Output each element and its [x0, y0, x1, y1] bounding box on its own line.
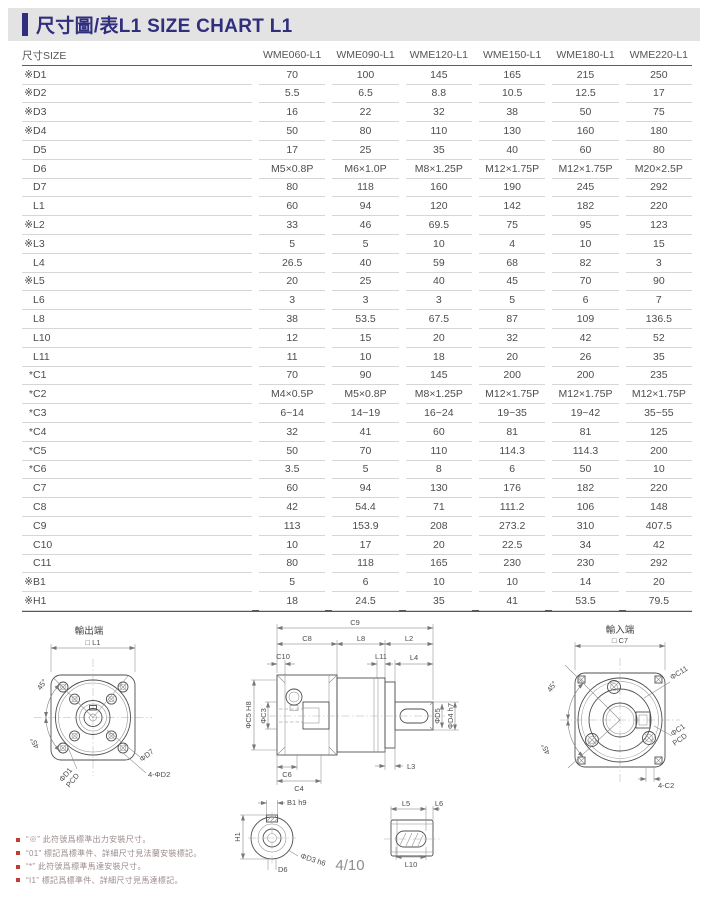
footnote-text: “※” 此符號爲標準出力安裝尺寸。 — [26, 834, 151, 845]
table-cell: 81 — [479, 423, 545, 442]
table-cell: 53.5 — [552, 592, 618, 611]
dim-label-l11: L11 — [375, 652, 387, 661]
table-cell: 94 — [332, 197, 398, 216]
table-cell: 3.5 — [259, 461, 325, 480]
table-row: C76094130176182220 — [22, 479, 692, 498]
table-cell: M8×1.25P — [406, 385, 472, 404]
row-label: D7 — [22, 179, 252, 198]
table-cell: 111.2 — [479, 498, 545, 517]
row-label: *C5 — [22, 442, 252, 461]
table-cell: 52 — [626, 329, 692, 348]
table-cell: 130 — [406, 479, 472, 498]
table-cell: 5.5 — [259, 85, 325, 104]
table-cell: 20 — [259, 273, 325, 292]
footnote-text: “I1” 標記爲標準件、詳細尺寸見馬達標記。 — [26, 875, 183, 886]
table-cell: 35~55 — [626, 404, 692, 423]
table-cell: 20 — [626, 573, 692, 592]
table-cell: 15 — [626, 235, 692, 254]
footnote: “01” 標記爲標準件、詳細尺寸見法蘭安裝標記。 — [16, 847, 202, 861]
table-cell: 5 — [332, 461, 398, 480]
table-cell: 95 — [552, 216, 618, 235]
angle-45-bottom-label: 45° — [28, 736, 41, 750]
row-label: *C4 — [22, 423, 252, 442]
table-cell: 11 — [259, 348, 325, 367]
dim-label-l4: L4 — [410, 653, 418, 662]
table-row: C9113153.9208273.2310407.5 — [22, 517, 692, 536]
footnote: “I1” 標記爲標準件、詳細尺寸見馬達標記。 — [16, 874, 202, 888]
row-label: D5 — [22, 141, 252, 160]
table-cell: 292 — [626, 179, 692, 198]
table-cell: 60 — [259, 197, 325, 216]
table-cell: 40 — [332, 254, 398, 273]
table-cell: 17 — [332, 536, 398, 555]
table-cell: 22.5 — [479, 536, 545, 555]
table-cell: 67.5 — [406, 310, 472, 329]
table-cell: 18 — [406, 348, 472, 367]
table-cell: 32 — [406, 103, 472, 122]
table-cell: 34 — [552, 536, 618, 555]
table-row: D5172535406080 — [22, 141, 692, 160]
table-row: *C2M4×0.5PM5×0.8PM8×1.25PM12×1.75PM12×1.… — [22, 385, 692, 404]
table-cell: 148 — [626, 498, 692, 517]
table-cell: 6~14 — [259, 404, 325, 423]
table-cell: M12×1.75P — [552, 385, 618, 404]
table-cell: 273.2 — [479, 517, 545, 536]
table-cell: 68 — [479, 254, 545, 273]
table-cell: 20 — [406, 536, 472, 555]
table-row: ※D25.56.58.810.512.517 — [22, 85, 692, 104]
table-cell: 20 — [406, 329, 472, 348]
table-row: C1010172022.53442 — [22, 536, 692, 555]
row-label: *C2 — [22, 385, 252, 404]
table-cell: 208 — [406, 517, 472, 536]
table-cell: 6 — [479, 461, 545, 480]
table-cell: 54.4 — [332, 498, 398, 517]
col-header: WME220-L1 — [626, 46, 692, 65]
table-cell: M12×1.75P — [552, 160, 618, 179]
angle-45-top-label: 45° — [35, 677, 49, 691]
table-row: ※B15610101420 — [22, 573, 692, 592]
row-label: L6 — [22, 291, 252, 310]
table-cell: M8×1.25P — [406, 160, 472, 179]
table-cell: 7 — [626, 291, 692, 310]
footnote: “*” 此符號爲標準馬達安裝尺寸。 — [16, 860, 202, 874]
table-row: ※L5202540457090 — [22, 273, 692, 292]
table-cell: 10 — [626, 461, 692, 480]
table-cell: 38 — [259, 310, 325, 329]
table-cell: 4 — [479, 235, 545, 254]
page-number: 4/10 — [305, 857, 395, 874]
col-header: WME060-L1 — [259, 46, 325, 65]
table-cell: 165 — [479, 66, 545, 85]
table-cell: 60 — [259, 479, 325, 498]
row-label: L11 — [22, 348, 252, 367]
size-table-header: 尺寸SIZEWME060-L1WME090-L1WME120-L1WME150-… — [22, 46, 692, 66]
row-label: *C3 — [22, 404, 252, 423]
row-label: ※B1 — [22, 573, 252, 592]
table-cell: 145 — [406, 367, 472, 386]
table-cell: 182 — [552, 479, 618, 498]
table-cell: 10 — [259, 536, 325, 555]
table-cell: 292 — [626, 555, 692, 574]
table-cell: 35 — [406, 592, 472, 611]
table-cell: 6 — [332, 573, 398, 592]
row-label: ※D2 — [22, 85, 252, 104]
datasheet-page: 尺寸圖/表L1 SIZE CHART L1 尺寸SIZEWME060-L1WME… — [0, 0, 715, 901]
table-cell: 32 — [479, 329, 545, 348]
table-row: L83853.567.587109136.5 — [22, 310, 692, 329]
table-cell: 160 — [552, 122, 618, 141]
dim-label-c5: ΦC5 H8 — [245, 701, 253, 728]
table-cell: 82 — [552, 254, 618, 273]
table-cell: 142 — [479, 197, 545, 216]
table-cell: 136.5 — [626, 310, 692, 329]
table-cell: 50 — [259, 122, 325, 141]
table-cell: 19~35 — [479, 404, 545, 423]
dim-label-c10: C10 — [276, 652, 290, 661]
table-cell: 200 — [552, 367, 618, 386]
table-cell: M5×0.8P — [259, 160, 325, 179]
table-cell: 16~24 — [406, 404, 472, 423]
table-cell: 26 — [552, 348, 618, 367]
table-cell: 17 — [626, 85, 692, 104]
row-label: ※L3 — [22, 235, 252, 254]
table-cell: M6×1.0P — [332, 160, 398, 179]
table-cell: 42 — [552, 329, 618, 348]
table-cell: 24.5 — [332, 592, 398, 611]
table-row: L426.5405968823 — [22, 254, 692, 273]
table-row: L6333567 — [22, 291, 692, 310]
angle-45-top-label: 45° — [545, 679, 559, 693]
table-cell: 79.5 — [626, 592, 692, 611]
table-row: *C17090145200200235 — [22, 367, 692, 386]
table-cell: 50 — [259, 442, 325, 461]
table-cell: 33 — [259, 216, 325, 235]
table-cell: 160 — [406, 179, 472, 198]
table-cell: 6.5 — [332, 85, 398, 104]
table-cell: 245 — [552, 179, 618, 198]
table-cell: 14~19 — [332, 404, 398, 423]
table-cell: 3 — [406, 291, 472, 310]
table-row: *C36~1414~1916~2419~3519~4235~55 — [22, 404, 692, 423]
table-cell: 80 — [259, 555, 325, 574]
table-row: L11111018202635 — [22, 348, 692, 367]
table-cell: 22 — [332, 103, 398, 122]
table-cell: 3 — [259, 291, 325, 310]
table-cell: 12.5 — [552, 85, 618, 104]
table-cell: 90 — [626, 273, 692, 292]
dim-label-l3: L3 — [407, 762, 415, 771]
row-label: ※D4 — [22, 122, 252, 141]
table-cell: 114.3 — [479, 442, 545, 461]
table-cell: 25 — [332, 273, 398, 292]
footnote: “※” 此符號爲標準出力安裝尺寸。 — [16, 833, 202, 847]
table-cell: 6 — [552, 291, 618, 310]
footnote-text: “*” 此符號爲標準馬達安裝尺寸。 — [26, 861, 146, 872]
table-cell: 120 — [406, 197, 472, 216]
table-cell: M5×0.8P — [332, 385, 398, 404]
table-cell: 130 — [479, 122, 545, 141]
table-cell: 14 — [552, 573, 618, 592]
page-title: 尺寸圖/表L1 SIZE CHART L1 — [36, 11, 292, 38]
table-cell: 35 — [626, 348, 692, 367]
dim-label-b1: B1 h9 — [287, 798, 307, 807]
table-row: D780118160190245292 — [22, 179, 692, 198]
table-row: C84254.471111.2106148 — [22, 498, 692, 517]
table-cell: 17 — [259, 141, 325, 160]
table-cell: 12 — [259, 329, 325, 348]
table-cell: 5 — [479, 291, 545, 310]
dim-label-l5: L5 — [402, 799, 410, 808]
dim-label-c6: C6 — [282, 770, 292, 779]
table-cell: 114.3 — [552, 442, 618, 461]
input-end-label: 輸入端 — [606, 624, 635, 636]
dim-label-c3: ΦC3 — [259, 708, 268, 724]
table-row: C1180118165230230292 — [22, 555, 692, 574]
table-cell: 35 — [406, 141, 472, 160]
row-label: *C1 — [22, 367, 252, 386]
table-cell: 180 — [626, 122, 692, 141]
table-cell: M20×2.5P — [626, 160, 692, 179]
table-cell: 41 — [479, 592, 545, 611]
table-cell: 220 — [626, 197, 692, 216]
bullet-icon — [16, 838, 20, 842]
table-cell: 182 — [552, 197, 618, 216]
col-header: WME090-L1 — [332, 46, 398, 65]
table-cell: 407.5 — [626, 517, 692, 536]
table-cell: 10 — [479, 573, 545, 592]
row-label: C8 — [22, 498, 252, 517]
row-label: ※L5 — [22, 273, 252, 292]
table-row: ※D170100145165215250 — [22, 66, 692, 85]
table-cell: 45 — [479, 273, 545, 292]
table-cell: 123 — [626, 216, 692, 235]
row-label: L4 — [22, 254, 252, 273]
dim-label-c8: C8 — [302, 634, 312, 643]
table-cell: 15 — [332, 329, 398, 348]
table-cell: 41 — [332, 423, 398, 442]
input-end-drawing: 輸入端 □ C7 45° 45° ΦC11 — [468, 618, 708, 814]
table-cell: 5 — [259, 573, 325, 592]
table-cell: 40 — [479, 141, 545, 160]
output-end-drawing: 輸出端 □ L1 45° 45° ΦD1 — [20, 620, 245, 798]
table-cell: 153.9 — [332, 517, 398, 536]
table-row: L10121520324252 — [22, 329, 692, 348]
table-cell: 200 — [626, 442, 692, 461]
table-cell: M4×0.5P — [259, 385, 325, 404]
table-cell: 50 — [552, 461, 618, 480]
dim-label-l10: L10 — [405, 860, 418, 869]
side-view-drawing: C9 C8 L8 L2 C10 L11 L4 — [245, 618, 470, 814]
table-cell: 25 — [332, 141, 398, 160]
table-cell: 40 — [406, 273, 472, 292]
table-cell: 200 — [479, 367, 545, 386]
row-label: L1 — [22, 197, 252, 216]
table-cell: 110 — [406, 442, 472, 461]
table-cell: 75 — [479, 216, 545, 235]
table-row: ※L3551041015 — [22, 235, 692, 254]
table-row: *C55070110114.3114.3200 — [22, 442, 692, 461]
table-cell: 118 — [332, 555, 398, 574]
table-cell: 3 — [626, 254, 692, 273]
col-header: WME180-L1 — [552, 46, 618, 65]
dim-label-d6: D6 — [278, 865, 288, 874]
table-cell: 90 — [332, 367, 398, 386]
table-row: *C63.55865010 — [22, 461, 692, 480]
table-cell: 46 — [332, 216, 398, 235]
footnotes: “※” 此符號爲標準出力安裝尺寸。“01” 標記爲標準件、詳細尺寸見法蘭安裝標記… — [16, 833, 202, 887]
table-cell: 3 — [332, 291, 398, 310]
table-cell: 26.5 — [259, 254, 325, 273]
row-label: *C6 — [22, 461, 252, 480]
table-cell: 100 — [332, 66, 398, 85]
output-end-label: 輸出端 — [75, 625, 104, 637]
table-cell: 38 — [479, 103, 545, 122]
table-cell: 20 — [479, 348, 545, 367]
dim-label-d7: ΦD7 — [138, 747, 156, 764]
table-cell: 230 — [552, 555, 618, 574]
table-cell: 310 — [552, 517, 618, 536]
table-cell: 42 — [259, 498, 325, 517]
table-cell: 53.5 — [332, 310, 398, 329]
table-cell: 87 — [479, 310, 545, 329]
table-cell: 10 — [406, 235, 472, 254]
table-cell: 80 — [259, 179, 325, 198]
table-cell: 71 — [406, 498, 472, 517]
row-label: ※H1 — [22, 592, 252, 611]
table-cell: 235 — [626, 367, 692, 386]
bullet-icon — [16, 865, 20, 869]
col-header-size: 尺寸SIZE — [22, 46, 252, 65]
table-cell: 80 — [626, 141, 692, 160]
dim-label-d4: ΦD4 h7 — [446, 703, 455, 729]
table-cell: M12×1.75P — [479, 160, 545, 179]
table-cell: 110 — [406, 122, 472, 141]
footnote-text: “01” 標記爲標準件、詳細尺寸見法蘭安裝標記。 — [26, 848, 202, 859]
table-cell: 60 — [406, 423, 472, 442]
size-table: 尺寸SIZEWME060-L1WME090-L1WME120-L1WME150-… — [22, 46, 692, 612]
dim-label-l8: L8 — [357, 634, 365, 643]
table-cell: 118 — [332, 179, 398, 198]
table-cell: 145 — [406, 66, 472, 85]
table-row: *C43241608181125 — [22, 423, 692, 442]
table-cell: M12×1.75P — [626, 385, 692, 404]
table-row: ※D45080110130160180 — [22, 122, 692, 141]
table-cell: 81 — [552, 423, 618, 442]
table-cell: 109 — [552, 310, 618, 329]
table-cell: 42 — [626, 536, 692, 555]
dim-label-d5: ΦD5 — [433, 708, 442, 724]
table-cell: 75 — [626, 103, 692, 122]
table-cell: 10 — [406, 573, 472, 592]
table-cell: 125 — [626, 423, 692, 442]
row-label: L10 — [22, 329, 252, 348]
table-cell: 10.5 — [479, 85, 545, 104]
row-label: C9 — [22, 517, 252, 536]
size-table-body: ※D170100145165215250※D25.56.58.810.512.5… — [22, 66, 692, 611]
row-label: L8 — [22, 310, 252, 329]
table-row: L16094120142182220 — [22, 197, 692, 216]
table-cell: 69.5 — [406, 216, 472, 235]
table-cell: 8 — [406, 461, 472, 480]
table-cell: 19~42 — [552, 404, 618, 423]
table-cell: 8.8 — [406, 85, 472, 104]
row-label: ※D1 — [22, 66, 252, 85]
dim-label-l1: □ L1 — [86, 638, 101, 647]
table-cell: 70 — [552, 273, 618, 292]
table-cell: 80 — [332, 122, 398, 141]
dim-label-c7: □ C7 — [612, 636, 628, 645]
table-cell: M12×1.75P — [479, 385, 545, 404]
table-cell: 250 — [626, 66, 692, 85]
table-cell: 5 — [259, 235, 325, 254]
table-cell: 94 — [332, 479, 398, 498]
table-cell: 230 — [479, 555, 545, 574]
row-label: C10 — [22, 536, 252, 555]
table-row: ※D3162232385075 — [22, 103, 692, 122]
table-cell: 70 — [259, 66, 325, 85]
table-cell: 113 — [259, 517, 325, 536]
table-cell: 5 — [332, 235, 398, 254]
table-cell: 176 — [479, 479, 545, 498]
table-cell: 190 — [479, 179, 545, 198]
table-cell: 220 — [626, 479, 692, 498]
title-band: 尺寸圖/表L1 SIZE CHART L1 — [8, 8, 700, 41]
dim-label-4d2: 4-ΦD2 — [148, 770, 170, 779]
table-cell: 106 — [552, 498, 618, 517]
table-cell: 70 — [259, 367, 325, 386]
bullet-icon — [16, 878, 20, 882]
table-cell: 165 — [406, 555, 472, 574]
table-cell: 50 — [552, 103, 618, 122]
row-label: ※L2 — [22, 216, 252, 235]
col-header: WME120-L1 — [406, 46, 472, 65]
bullet-icon — [16, 851, 20, 855]
table-cell: 18 — [259, 592, 325, 611]
dim-label-h1: H1 — [233, 832, 242, 842]
title-accent-bar — [22, 13, 28, 36]
table-cell: 16 — [259, 103, 325, 122]
row-label: D6 — [22, 160, 252, 179]
row-label: C11 — [22, 555, 252, 574]
dim-label-l2: L2 — [405, 634, 413, 643]
table-row: D6M5×0.8PM6×1.0PM8×1.25PM12×1.75PM12×1.7… — [22, 160, 692, 179]
dim-label-c9: C9 — [350, 618, 360, 627]
table-cell: 10 — [552, 235, 618, 254]
table-row: ※L2334669.57595123 — [22, 216, 692, 235]
table-cell: 10 — [332, 348, 398, 367]
dim-label-l6: L6 — [435, 799, 443, 808]
table-row: ※H11824.5354153.579.5 — [22, 592, 692, 611]
dim-label-4c2: 4-C2 — [658, 781, 674, 790]
row-label: C7 — [22, 479, 252, 498]
pcd-callout: ΦD1 PCD — [57, 765, 81, 789]
table-cell: 60 — [552, 141, 618, 160]
table-cell: 59 — [406, 254, 472, 273]
row-label: ※D3 — [22, 103, 252, 122]
table-cell: 32 — [259, 423, 325, 442]
angle-45-bottom-label: 45° — [539, 742, 552, 756]
table-cell: 70 — [332, 442, 398, 461]
table-cell: 215 — [552, 66, 618, 85]
col-header: WME150-L1 — [479, 46, 545, 65]
dim-label-c11: ΦC11 — [668, 664, 689, 682]
